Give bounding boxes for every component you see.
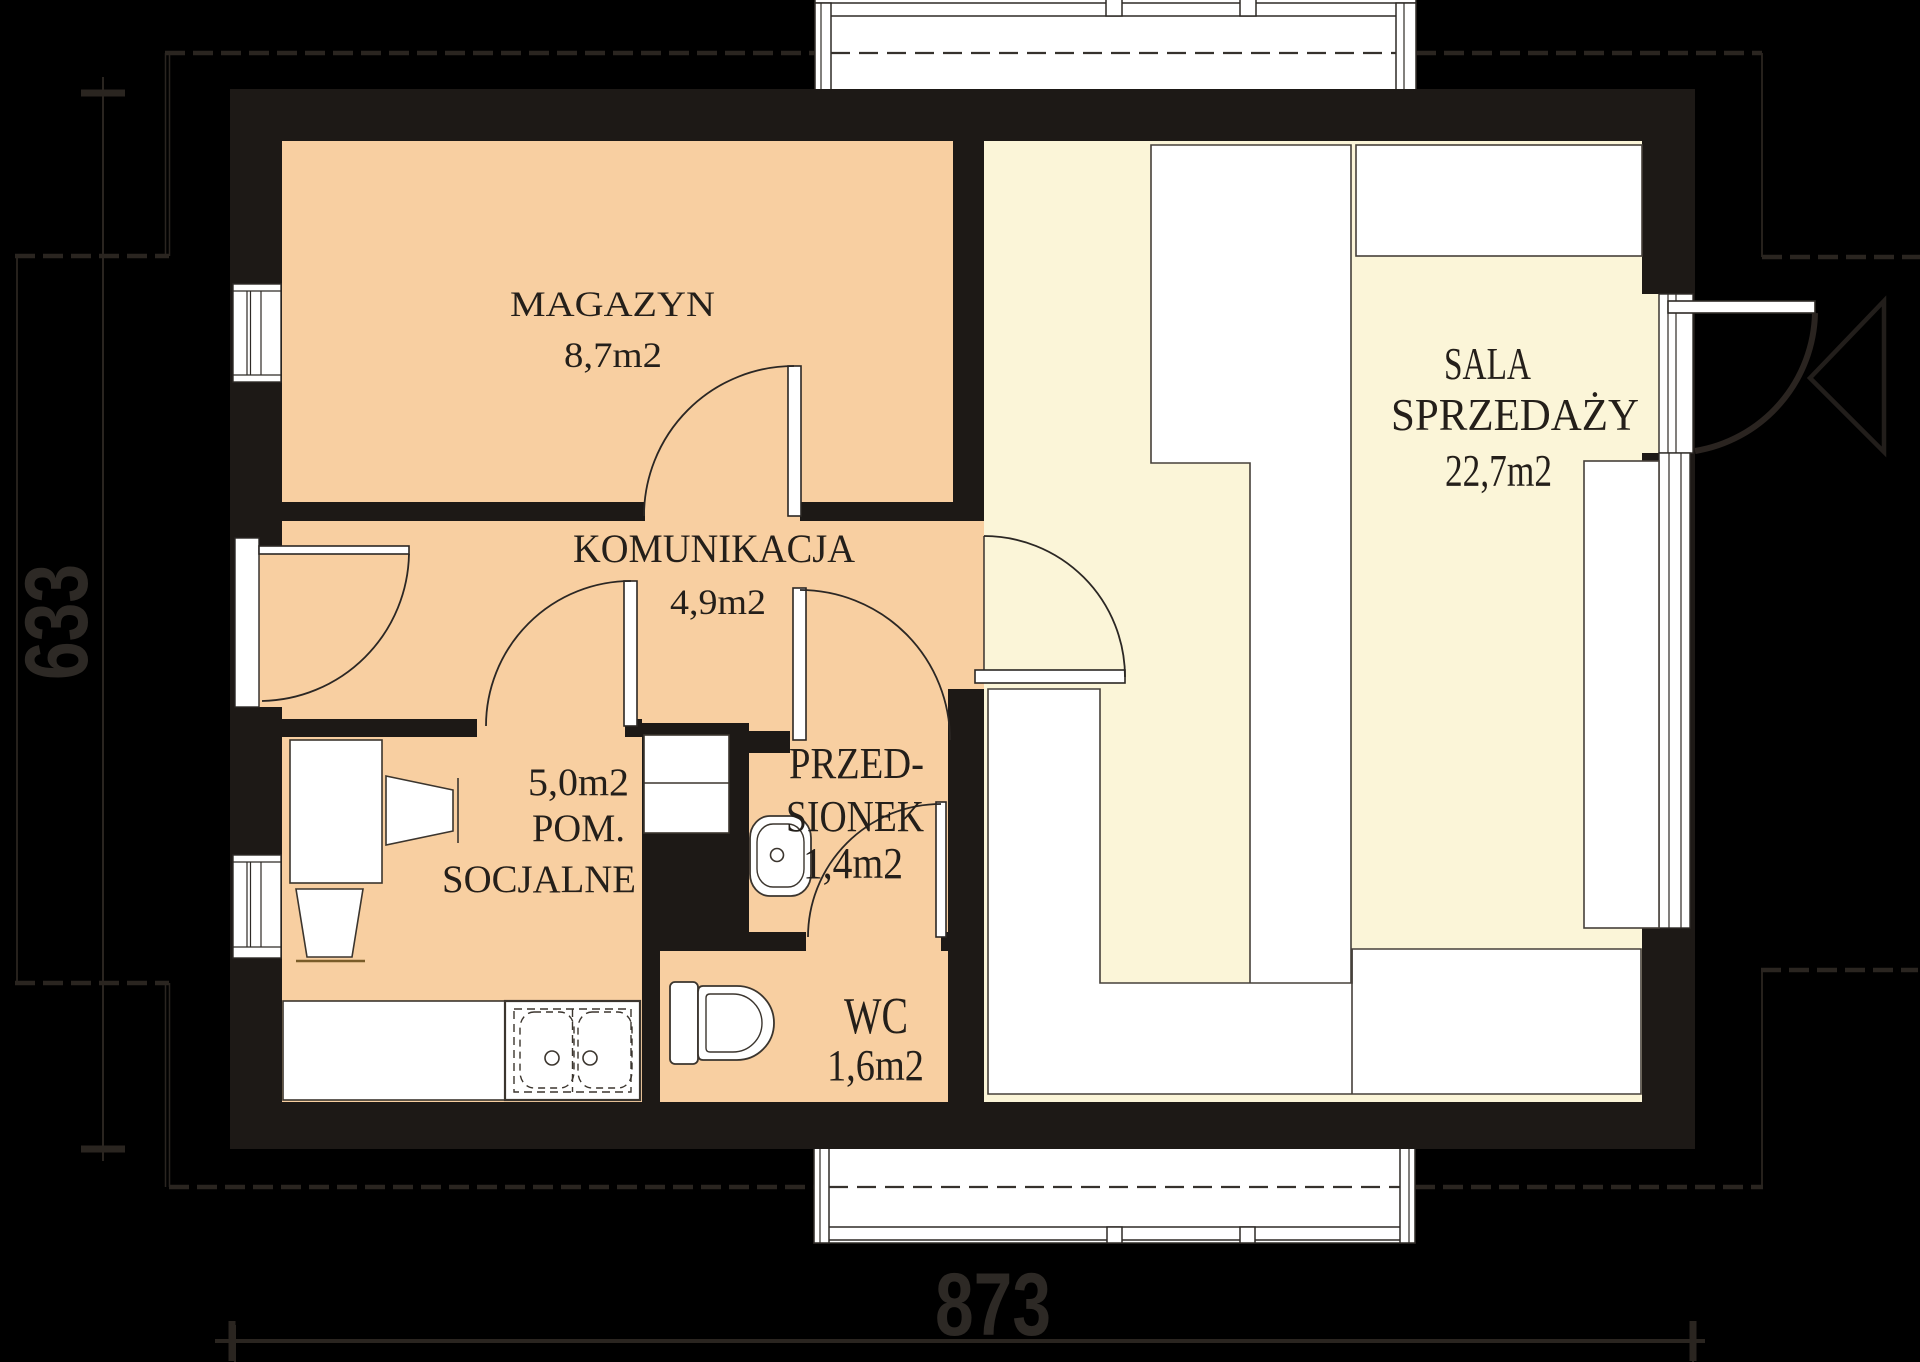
svg-text:633: 633 [6, 564, 106, 680]
svg-text:8,7m2: 8,7m2 [564, 335, 662, 375]
svg-text:873: 873 [935, 1254, 1051, 1354]
svg-text:5,0m2: 5,0m2 [528, 761, 629, 804]
svg-text:1,4m2: 1,4m2 [803, 839, 903, 888]
svg-text:22,7m2: 22,7m2 [1445, 446, 1552, 496]
svg-text:SOCJALNE: SOCJALNE [442, 858, 636, 901]
svg-text:POM.: POM. [532, 807, 625, 850]
svg-text:KOMUNIKACJA: KOMUNIKACJA [573, 526, 855, 571]
svg-text:PRZED-: PRZED- [789, 739, 924, 788]
svg-text:SPRZEDAŻY: SPRZEDAŻY [1391, 390, 1639, 440]
svg-text:SIONEK: SIONEK [786, 792, 924, 841]
svg-text:MAGAZYN: MAGAZYN [510, 284, 715, 324]
svg-text:4,9m2: 4,9m2 [670, 582, 766, 622]
svg-text:WC: WC [844, 988, 908, 1045]
svg-text:SALA: SALA [1444, 339, 1531, 389]
svg-text:1,6m2: 1,6m2 [827, 1041, 924, 1090]
